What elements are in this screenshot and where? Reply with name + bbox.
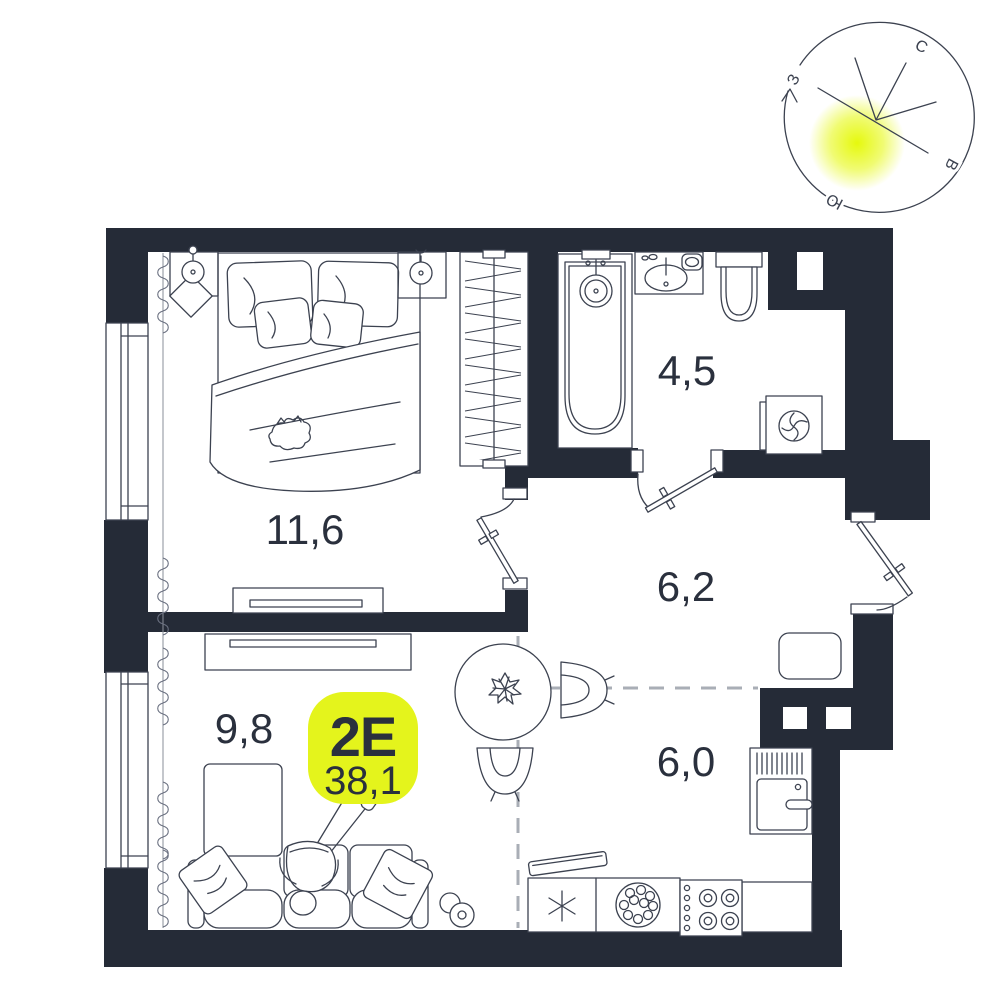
compass-arrow-icon	[782, 89, 797, 102]
hallway-cabinet	[779, 633, 841, 679]
compass-letter-south: Ю	[824, 190, 846, 213]
wardrobe	[460, 250, 528, 468]
curtain-line	[158, 253, 169, 928]
floor-lamp	[440, 893, 474, 927]
compass-letter-north: С	[912, 37, 930, 57]
kitchen-sink	[616, 883, 660, 927]
area-badge: 2Е 38,1	[308, 692, 418, 804]
fridge	[750, 748, 812, 834]
bathroom-sink	[635, 252, 703, 294]
washing-machine	[760, 396, 822, 454]
tv-console-bedroom	[233, 588, 383, 613]
vent-shaft	[826, 707, 851, 729]
room-area-label-kitchen: 6,0	[657, 738, 715, 785]
room-area-label-hallway: 6,2	[657, 563, 715, 610]
cutting-board	[528, 851, 607, 876]
toilet	[716, 252, 762, 321]
room-area-label-bathroom: 4,5	[658, 347, 716, 394]
entrance-door	[850, 512, 919, 614]
stove	[680, 880, 742, 936]
chair-right	[561, 662, 614, 718]
apartment-floor-plan: С В Ю З	[0, 0, 1000, 1000]
unit-total-area: 38,1	[324, 759, 402, 803]
double-bed	[210, 253, 420, 491]
kitchen-counter	[528, 878, 812, 932]
chair-bottom	[477, 748, 533, 801]
bathtub	[558, 250, 632, 448]
bathroom-door	[631, 450, 723, 520]
compass-letter-east: В	[941, 155, 961, 172]
room-area-label-living: 9,8	[215, 705, 273, 752]
compass-letter-west: З	[784, 72, 804, 89]
room-area-label-bedroom: 11,6	[266, 506, 345, 553]
vent-shaft	[797, 252, 823, 290]
window	[106, 672, 148, 868]
vent-shaft	[783, 707, 807, 729]
dining-table	[455, 644, 551, 740]
window	[106, 323, 148, 520]
bedroom-door	[470, 488, 527, 589]
compass: С В Ю З	[782, 22, 974, 212]
apartment-floor-plan-page: С В Ю З	[0, 0, 1000, 1000]
tv-console-living	[205, 634, 411, 670]
sun-glow	[809, 95, 905, 191]
